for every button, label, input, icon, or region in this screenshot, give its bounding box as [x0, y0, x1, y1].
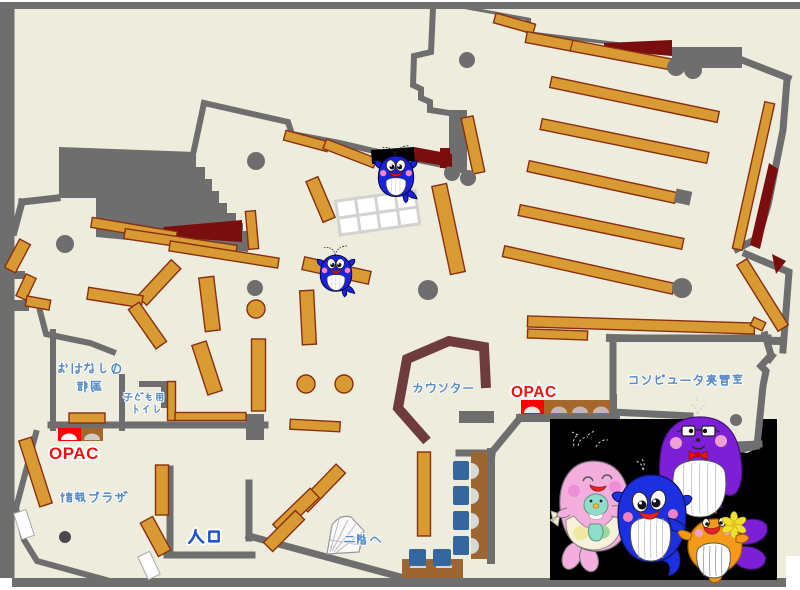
- svg-text:OPAC: OPAC: [49, 444, 99, 463]
- svg-text:OPAC: OPAC: [511, 384, 557, 401]
